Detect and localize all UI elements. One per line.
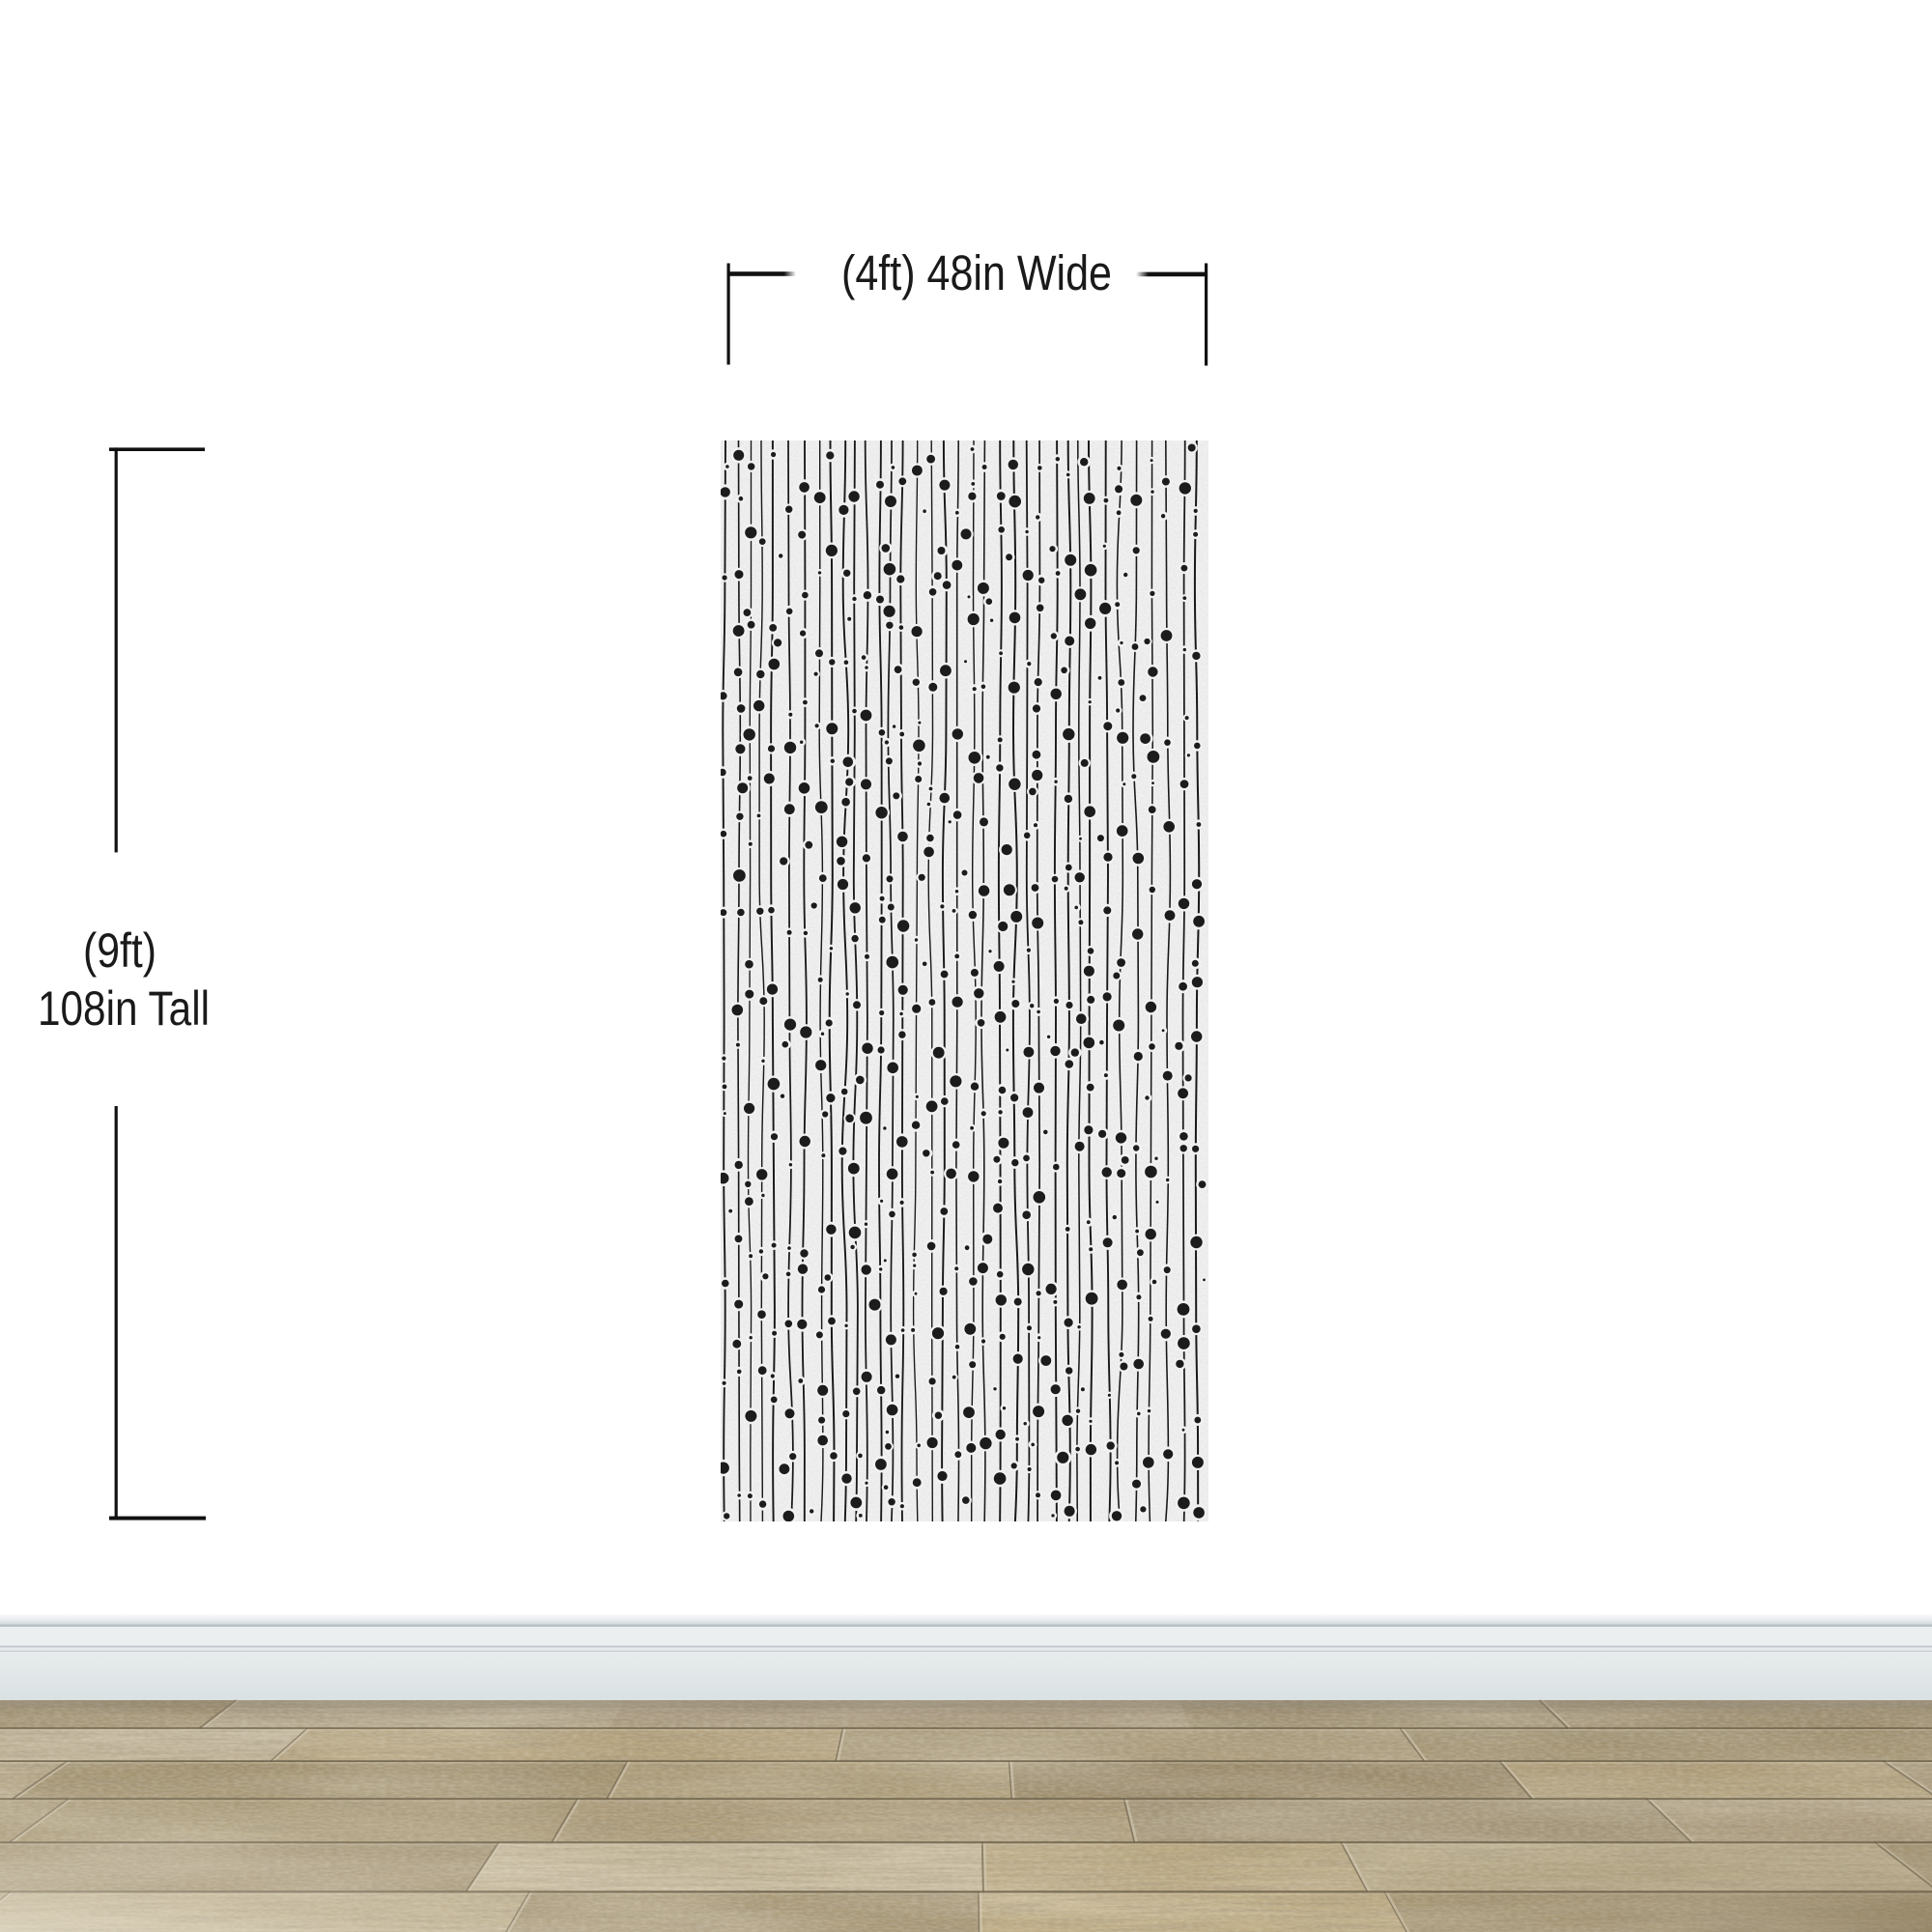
svg-text:(9ft): (9ft) [83, 923, 156, 978]
svg-text:108in Tall: 108in Tall [38, 981, 210, 1036]
svg-text:(4ft) 48in Wide: (4ft) 48in Wide [841, 245, 1112, 300]
